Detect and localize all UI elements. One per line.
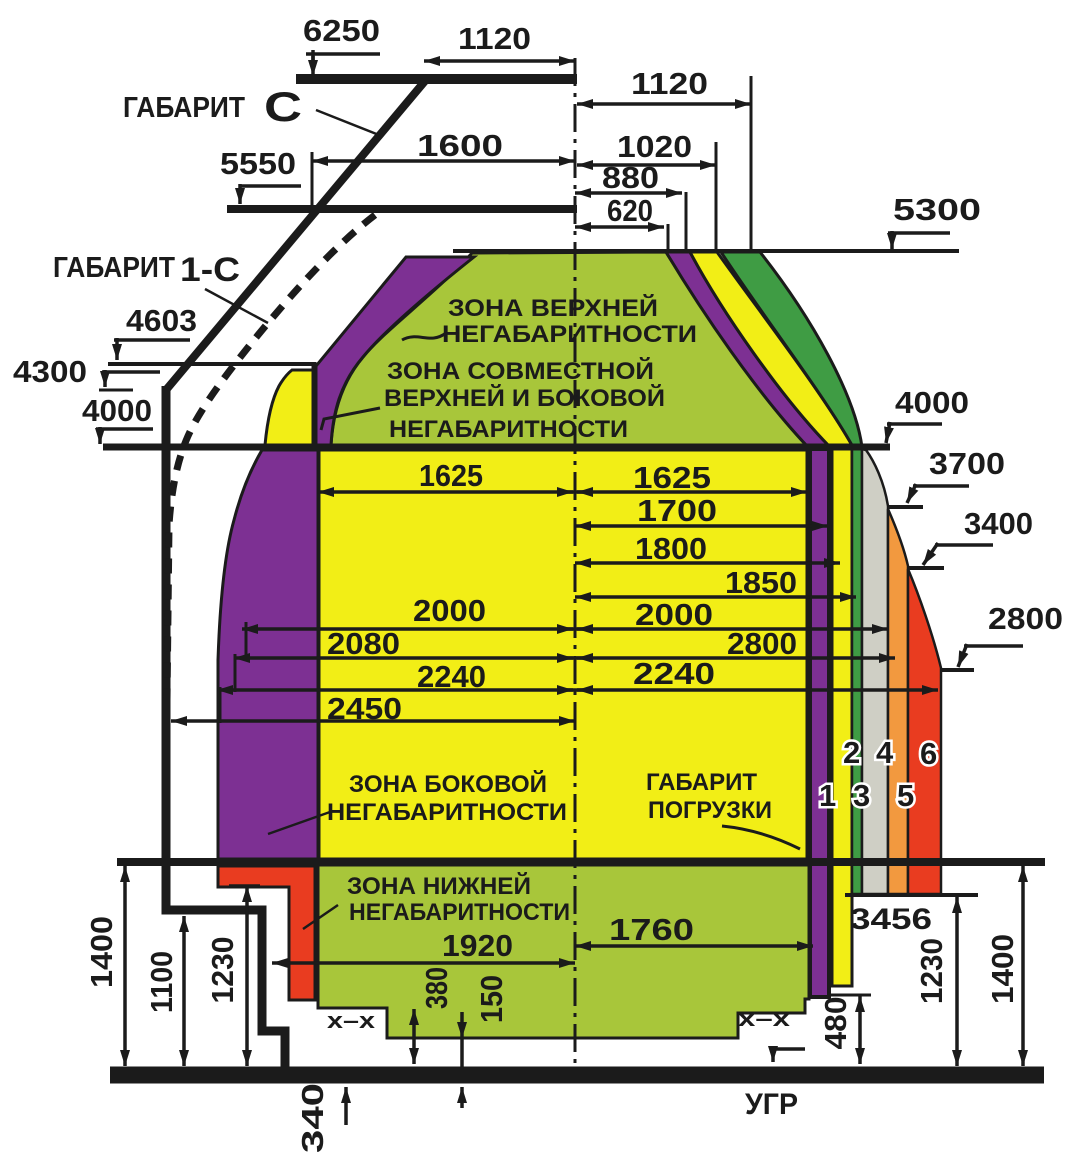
svg-text:1120: 1120 <box>631 66 708 101</box>
svg-text:НЕГАБАРИТНОСТИ: НЕГАБАРИТНОСТИ <box>442 321 697 348</box>
svg-text:5: 5 <box>897 778 914 813</box>
svg-text:ЗОНА ВЕРХНЕЙ: ЗОНА ВЕРХНЕЙ <box>448 294 658 322</box>
svg-text:150: 150 <box>474 975 509 1023</box>
svg-text:2240: 2240 <box>417 659 486 694</box>
svg-text:1230: 1230 <box>914 938 949 1004</box>
svg-text:1700: 1700 <box>637 493 717 528</box>
svg-text:4300: 4300 <box>13 354 87 389</box>
svg-text:1230: 1230 <box>205 937 240 1004</box>
svg-text:5300: 5300 <box>893 192 981 227</box>
svg-text:4603: 4603 <box>126 303 197 338</box>
svg-text:ЗОНА НИЖНЕЙ: ЗОНА НИЖНЕЙ <box>347 872 531 900</box>
svg-text:1-С: 1-С <box>180 251 240 289</box>
svg-text:4000: 4000 <box>895 385 969 420</box>
svg-text:1120: 1120 <box>458 21 531 56</box>
svg-text:480: 480 <box>818 997 853 1050</box>
svg-text:2080: 2080 <box>327 626 400 661</box>
svg-text:ЗОНА БОКОВОЙ: ЗОНА БОКОВОЙ <box>349 770 547 798</box>
svg-text:С: С <box>264 83 302 130</box>
svg-text:ПОГРУЗКИ: ПОГРУЗКИ <box>648 797 772 824</box>
svg-text:1400: 1400 <box>985 934 1020 1004</box>
svg-text:6250: 6250 <box>303 13 380 48</box>
svg-text:ЗОНА СОВМЕСТНОЙ: ЗОНА СОВМЕСТНОЙ <box>387 357 654 385</box>
svg-text:1760: 1760 <box>609 912 694 947</box>
svg-text:2000: 2000 <box>635 597 713 632</box>
svg-text:1400: 1400 <box>84 916 119 988</box>
svg-text:1600: 1600 <box>417 128 503 163</box>
svg-text:6: 6 <box>920 736 937 771</box>
svg-text:ВЕРХНЕЙ И БОКОВОЙ: ВЕРХНЕЙ И БОКОВОЙ <box>384 384 665 412</box>
svg-text:1100: 1100 <box>144 951 179 1013</box>
svg-text:3700: 3700 <box>929 446 1005 481</box>
svg-text:1020: 1020 <box>617 129 692 164</box>
svg-text:880: 880 <box>602 160 659 195</box>
svg-text:2000: 2000 <box>413 593 486 628</box>
svg-text:ГАБАРИТ: ГАБАРИТ <box>123 92 245 124</box>
svg-text:НЕГАБАРИТНОСТИ: НЕГАБАРИТНОСТИ <box>389 416 628 443</box>
svg-text:1920: 1920 <box>442 928 513 963</box>
svg-text:1625: 1625 <box>633 460 711 495</box>
svg-text:3456: 3456 <box>850 903 932 936</box>
svg-text:ГАБАРИТ: ГАБАРИТ <box>53 252 175 284</box>
svg-text:1800: 1800 <box>635 531 707 566</box>
svg-text:340: 340 <box>295 1083 330 1153</box>
svg-text:5550: 5550 <box>220 146 296 181</box>
svg-text:2240: 2240 <box>633 656 715 691</box>
svg-text:380: 380 <box>419 967 454 1009</box>
svg-text:1625: 1625 <box>419 458 483 493</box>
svg-text:2: 2 <box>843 735 860 770</box>
svg-text:3: 3 <box>853 778 870 813</box>
svg-text:1: 1 <box>819 778 836 813</box>
svg-text:2450: 2450 <box>327 691 402 726</box>
svg-text:ГАБАРИТ: ГАБАРИТ <box>646 769 757 796</box>
svg-text:4: 4 <box>876 735 894 770</box>
svg-text:УГР: УГР <box>745 1088 798 1121</box>
svg-text:х–х: х–х <box>738 1006 791 1031</box>
svg-text:НЕГАБАРИТНОСТИ: НЕГАБАРИТНОСТИ <box>349 899 570 926</box>
svg-text:3400: 3400 <box>964 506 1033 541</box>
svg-text:2800: 2800 <box>988 601 1063 636</box>
svg-text:1850: 1850 <box>725 565 797 600</box>
svg-text:х–х: х–х <box>327 1008 376 1033</box>
svg-text:НЕГАБАРИТНОСТИ: НЕГАБАРИТНОСТИ <box>327 799 567 826</box>
svg-text:2800: 2800 <box>727 626 797 661</box>
svg-text:620: 620 <box>607 193 653 228</box>
svg-text:4000: 4000 <box>82 393 152 428</box>
